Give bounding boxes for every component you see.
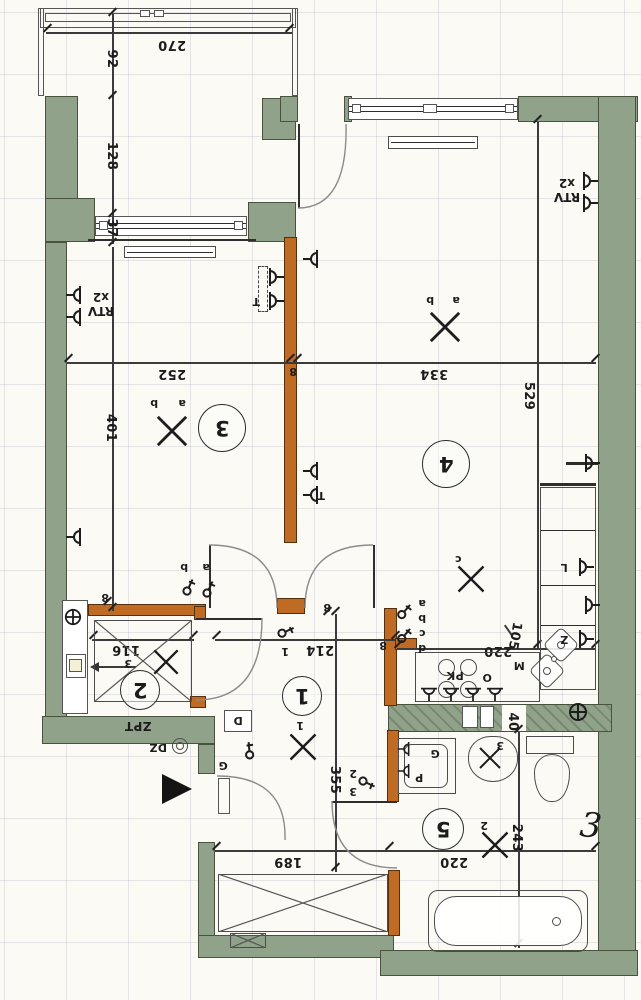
room-number: 5 [436, 817, 451, 841]
wall-hall-left-a [198, 744, 215, 774]
socket-icon [65, 285, 83, 305]
socket-t-label: T [315, 488, 327, 502]
ceiling-lamp-icon [152, 648, 180, 676]
radiator-room3 [124, 246, 216, 258]
vent-icon [568, 702, 588, 722]
entry-socket-label: G [216, 758, 230, 772]
switch-icon [200, 578, 216, 598]
cabinet-small-cross [230, 933, 266, 948]
doorbell-icon-inner [176, 742, 184, 750]
room-number: 4 [439, 452, 454, 476]
dim-189: 189 [268, 854, 308, 868]
dim-220-bath: 220 [434, 854, 474, 868]
door-arc-balcony [298, 124, 348, 210]
dim-252: 252 [150, 366, 194, 380]
doorbell-label: DZ [146, 740, 170, 754]
socket-icon [464, 686, 482, 702]
door-arc-room4 [305, 545, 373, 608]
handwritten-note: 3 [578, 805, 604, 847]
wall-room4-top-a [280, 96, 298, 122]
ceiling-lamp-icon [288, 732, 318, 762]
dim-line-252-334 [67, 362, 596, 364]
dim-40: 40 [505, 702, 519, 742]
partition-foot [277, 598, 305, 614]
dim-wall8-a: 8 [286, 364, 300, 378]
door-arc-bath [332, 801, 397, 868]
wall-niche-a [462, 706, 478, 728]
switch-label: d [417, 641, 427, 655]
socket-icon [442, 686, 460, 702]
dim-37: 37 [104, 208, 118, 248]
bathtub-drain [552, 917, 561, 926]
toilet-tank [526, 736, 574, 754]
switch-icon [358, 774, 378, 790]
room-circle-1: 1 [282, 676, 322, 716]
ceiling-lamp-icon [456, 564, 486, 594]
socket-icon [267, 267, 285, 287]
ceiling-lamp-icon [480, 830, 510, 860]
lamp-label: 2 [478, 818, 490, 832]
socket-icon [583, 595, 601, 615]
window-room4 [348, 98, 518, 120]
ceiling-lamp-icon [155, 414, 189, 448]
switch-label: b [417, 611, 427, 625]
oven-label: O [480, 670, 494, 684]
room-number: 3 [215, 416, 230, 440]
switch-icon [180, 576, 196, 596]
railing-post [154, 10, 164, 17]
switch-label: 3 [348, 784, 358, 798]
dim-92: 92 [104, 39, 118, 79]
dim-line-270 [46, 32, 292, 34]
counter-divider [541, 625, 595, 626]
door-arc-room3 [209, 545, 277, 608]
wall-hall-left-b [198, 842, 215, 937]
socket-icon [65, 527, 83, 547]
hob-label: PK [444, 668, 466, 682]
socket-icon [486, 686, 504, 702]
rtv-text: RTV [82, 304, 120, 318]
dim-270: 270 [150, 37, 194, 51]
socket-icon [420, 686, 438, 702]
vent-icon [64, 608, 82, 626]
lamp-label: b [424, 293, 436, 307]
balcony-railing-inner [45, 13, 291, 22]
switch-label: c [417, 626, 427, 640]
wall-room3-top-right [248, 202, 296, 242]
partition-wardrobe [388, 870, 400, 936]
socket-icon [581, 193, 599, 213]
rtv-label-room3: RTV x2 [82, 284, 120, 318]
room-number: 1 [295, 684, 310, 708]
room-circle-3: 3 [198, 404, 246, 452]
hood-label: M [512, 658, 526, 672]
lamp-label: 1 [294, 718, 306, 732]
door-leaf-room4 [373, 545, 375, 608]
ceiling-lamp-icon [428, 310, 462, 344]
kitchen-wall-stub [540, 483, 596, 486]
socket-icon [581, 171, 599, 191]
dim-128: 128 [104, 136, 118, 176]
dim-401: 401 [103, 408, 117, 448]
dim-line-189-220 [215, 850, 596, 852]
partition-room3-room4 [284, 237, 297, 543]
socket-icon [583, 453, 601, 473]
room-circle-5: 5 [422, 808, 464, 850]
washer-socket-label: G [428, 746, 442, 760]
wall-room3-top-left [45, 198, 95, 242]
wall-bottom-left [198, 935, 394, 958]
fridge-socket-label: L [558, 560, 570, 574]
switch-label: a [417, 596, 427, 610]
sink-socket-label: Z [558, 632, 570, 646]
railing-post [140, 10, 150, 17]
room-number: 2 [133, 678, 148, 702]
socket-icon [397, 741, 411, 757]
lamp-label: 3 [494, 738, 506, 752]
dim-243: 243 [509, 818, 523, 858]
socket-icon [302, 461, 320, 481]
partition-hall-kitchen [384, 608, 397, 706]
dim-355: 355 [327, 760, 341, 800]
radiator-room4 [388, 136, 478, 149]
railing-side-right [292, 8, 298, 96]
dim-334: 334 [412, 366, 456, 380]
intercom-label: D [230, 713, 246, 727]
socket-icon [302, 249, 320, 269]
lamp-label: a [450, 293, 462, 307]
partition-room2-top [88, 604, 206, 616]
wall-bottom-right [380, 950, 638, 976]
dim-214-extra: 1 [280, 644, 290, 658]
counter-divider [541, 530, 595, 531]
door-arc-entry [215, 776, 287, 840]
floor-plan: 270 92 128 37 252 401 334 529 8 8 8 8 11… [0, 0, 641, 1000]
switch-label: 2 [348, 766, 358, 780]
wall-niche-b [480, 706, 494, 728]
sink-faucet [551, 656, 557, 662]
rtv-qty: x2 [82, 290, 120, 304]
sink-drain-2 [543, 667, 551, 675]
washer-label: P [412, 770, 426, 784]
switch-label: b [178, 560, 190, 574]
socket-t-label: T [250, 294, 262, 308]
meter-box-inner [69, 659, 82, 672]
socket-icon [577, 629, 595, 649]
wall-right [598, 96, 636, 954]
door-arc-room2 [196, 618, 262, 700]
socket-icon [65, 307, 83, 327]
railing-side-left [38, 8, 44, 96]
dim-wall8-c: 8 [376, 638, 390, 652]
panel-label: ZPT [116, 719, 160, 733]
room-circle-4: 4 [422, 440, 470, 488]
entrance-marker [162, 774, 192, 804]
dim-wall8-d: 8 [98, 590, 112, 604]
switch-label: a [200, 560, 212, 574]
lamp-label: b [148, 396, 160, 410]
wardrobe-hall-cross [218, 874, 388, 932]
lamp-label: c [452, 552, 464, 566]
dim-529: 529 [521, 376, 535, 416]
socket-icon [267, 291, 285, 311]
socket-icon [397, 763, 411, 779]
lamp-label: a [176, 396, 188, 410]
counter-divider [541, 585, 595, 586]
room-circle-2: 2 [120, 670, 160, 710]
socket-icon [577, 557, 595, 577]
dim-line-529 [537, 122, 539, 648]
dim-214: 214 [298, 642, 342, 656]
